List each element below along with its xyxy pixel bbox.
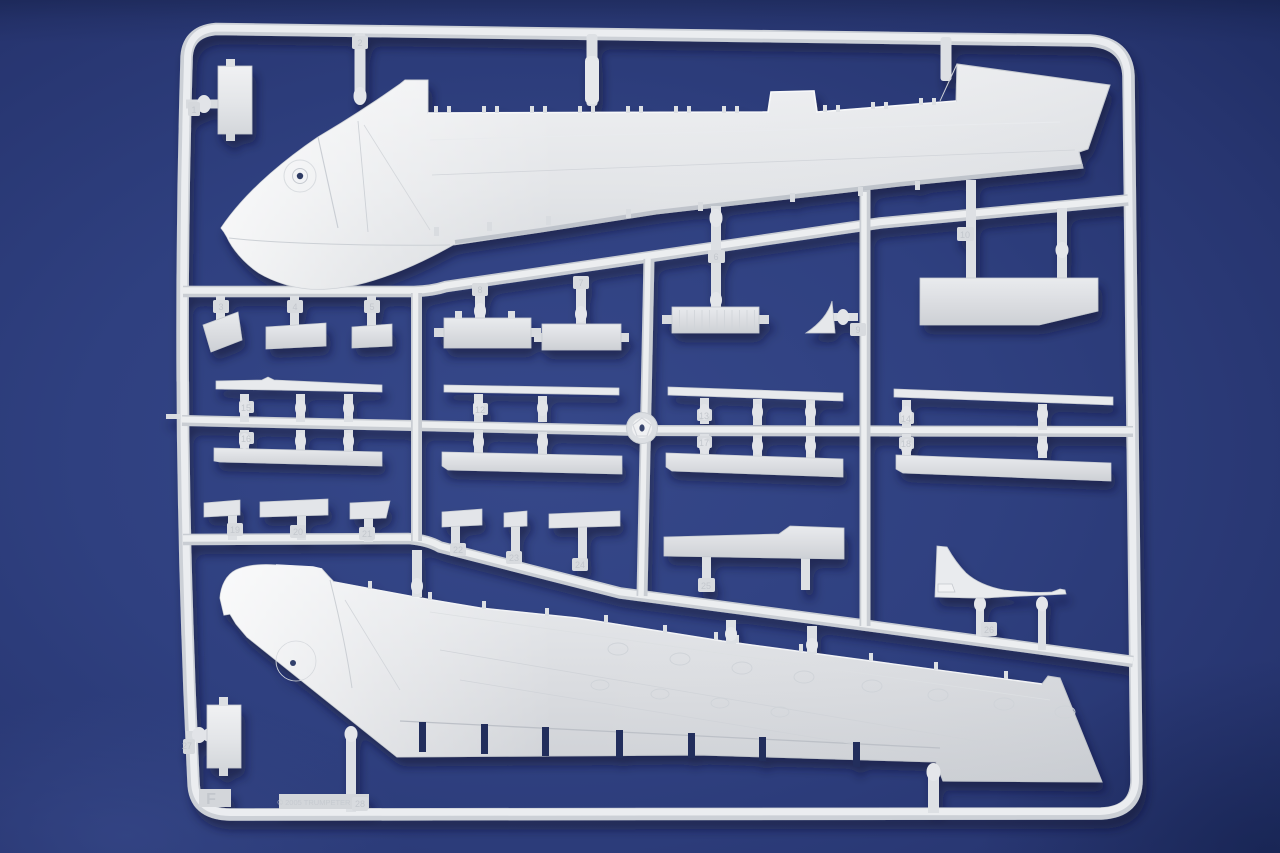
svg-text:4: 4 [292, 302, 297, 312]
svg-text:26: 26 [984, 625, 994, 635]
svg-text:12: 12 [475, 405, 485, 415]
svg-text:19: 19 [230, 525, 240, 535]
svg-text:28: 28 [355, 799, 365, 809]
svg-text:25: 25 [701, 581, 711, 591]
svg-text:22: 22 [453, 545, 463, 555]
svg-text:F: F [206, 791, 216, 808]
svg-text:14: 14 [901, 414, 911, 424]
svg-text:13: 13 [699, 411, 709, 421]
svg-text:8: 8 [477, 285, 482, 295]
svg-text:21: 21 [362, 529, 372, 539]
svg-text:15: 15 [241, 403, 251, 413]
svg-text:2: 2 [357, 38, 362, 48]
svg-text:5: 5 [369, 302, 374, 312]
svg-text:16: 16 [241, 434, 251, 444]
svg-text:10: 10 [960, 230, 970, 240]
svg-text:27: 27 [182, 741, 192, 751]
svg-text:1: 1 [191, 105, 196, 115]
svg-text:24: 24 [575, 560, 585, 570]
svg-text:20: 20 [293, 527, 303, 537]
svg-text:9: 9 [855, 325, 860, 335]
svg-text:6: 6 [713, 252, 718, 262]
svg-text:18: 18 [901, 439, 911, 449]
svg-text:23: 23 [509, 553, 519, 563]
svg-text:© 2005 TRUMPETER: © 2005 TRUMPETER [278, 798, 351, 807]
svg-text:17: 17 [699, 438, 709, 448]
svg-text:7: 7 [578, 278, 583, 288]
svg-text:3: 3 [218, 302, 223, 312]
